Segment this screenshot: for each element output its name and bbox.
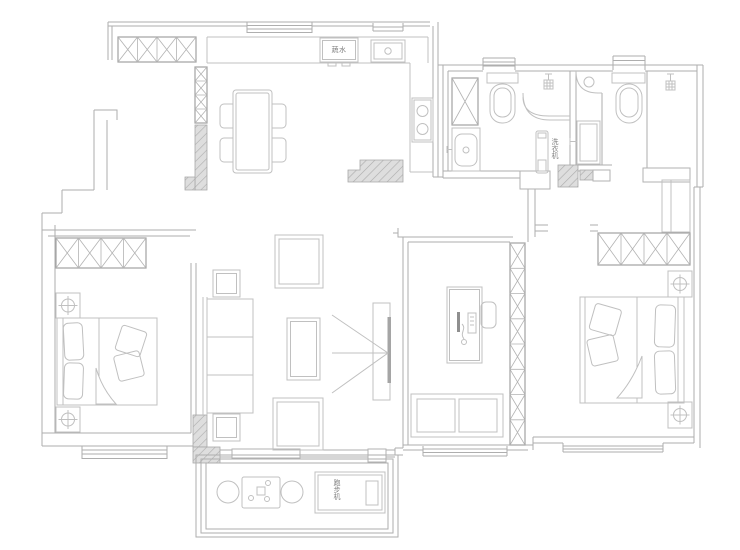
master-bathroom	[570, 71, 675, 164]
kitchen-sink	[371, 40, 405, 62]
sofa	[203, 270, 253, 441]
entry-shoe-cabinet	[118, 37, 196, 62]
wardrobe	[56, 238, 146, 268]
nightstand	[668, 271, 692, 297]
floor-plan-canvas: 蔬水 洗衣机 跑步机	[0, 0, 740, 550]
toilet	[612, 73, 645, 123]
tv-screen	[388, 317, 392, 383]
nightstand	[56, 407, 80, 432]
hall-cabinet	[662, 180, 690, 232]
living-room	[203, 235, 391, 450]
vanity-cabinet	[570, 121, 600, 164]
balcony-table	[242, 477, 280, 508]
toilet	[487, 73, 518, 123]
keyboard	[468, 313, 476, 333]
mouse	[462, 340, 467, 345]
plant	[281, 481, 303, 503]
washing-machine	[536, 131, 548, 173]
side-table	[275, 235, 323, 288]
plant	[217, 481, 239, 503]
study	[411, 243, 525, 445]
door-blocks	[232, 168, 690, 462]
bench	[411, 394, 503, 437]
left-bedroom	[56, 238, 157, 432]
wardrobe	[598, 233, 690, 265]
monitor	[457, 312, 460, 332]
corner-basin	[576, 71, 602, 93]
bathroom-sink	[447, 128, 480, 171]
duct-shaft	[452, 78, 478, 125]
nightstand	[56, 293, 80, 318]
desk-chair	[481, 302, 496, 328]
tv-view-lines	[332, 315, 388, 393]
entry-tall-cabinet	[195, 67, 207, 123]
desk	[447, 287, 482, 363]
treadmill-label: 跑步机	[333, 479, 341, 500]
balcony	[196, 455, 398, 537]
dining-set	[220, 90, 286, 173]
nightstand	[668, 402, 692, 428]
stove	[412, 98, 433, 142]
tv-unit	[332, 303, 391, 400]
shower-head-icon	[544, 74, 553, 89]
washing-machine-label: 洗衣机	[551, 138, 559, 159]
coffee-table	[287, 318, 320, 380]
study-wardrobe	[510, 243, 525, 445]
shower-corner	[523, 74, 570, 120]
kitchen-appliance-label: 蔬水	[332, 46, 347, 54]
bed	[580, 297, 684, 403]
side-table	[273, 398, 323, 450]
master-bedroom	[580, 233, 692, 428]
treadmill	[315, 472, 385, 513]
bed	[57, 318, 157, 405]
shower-head-icon	[666, 74, 675, 90]
dining-table	[233, 90, 272, 173]
floor-plan-drawing	[0, 0, 740, 550]
